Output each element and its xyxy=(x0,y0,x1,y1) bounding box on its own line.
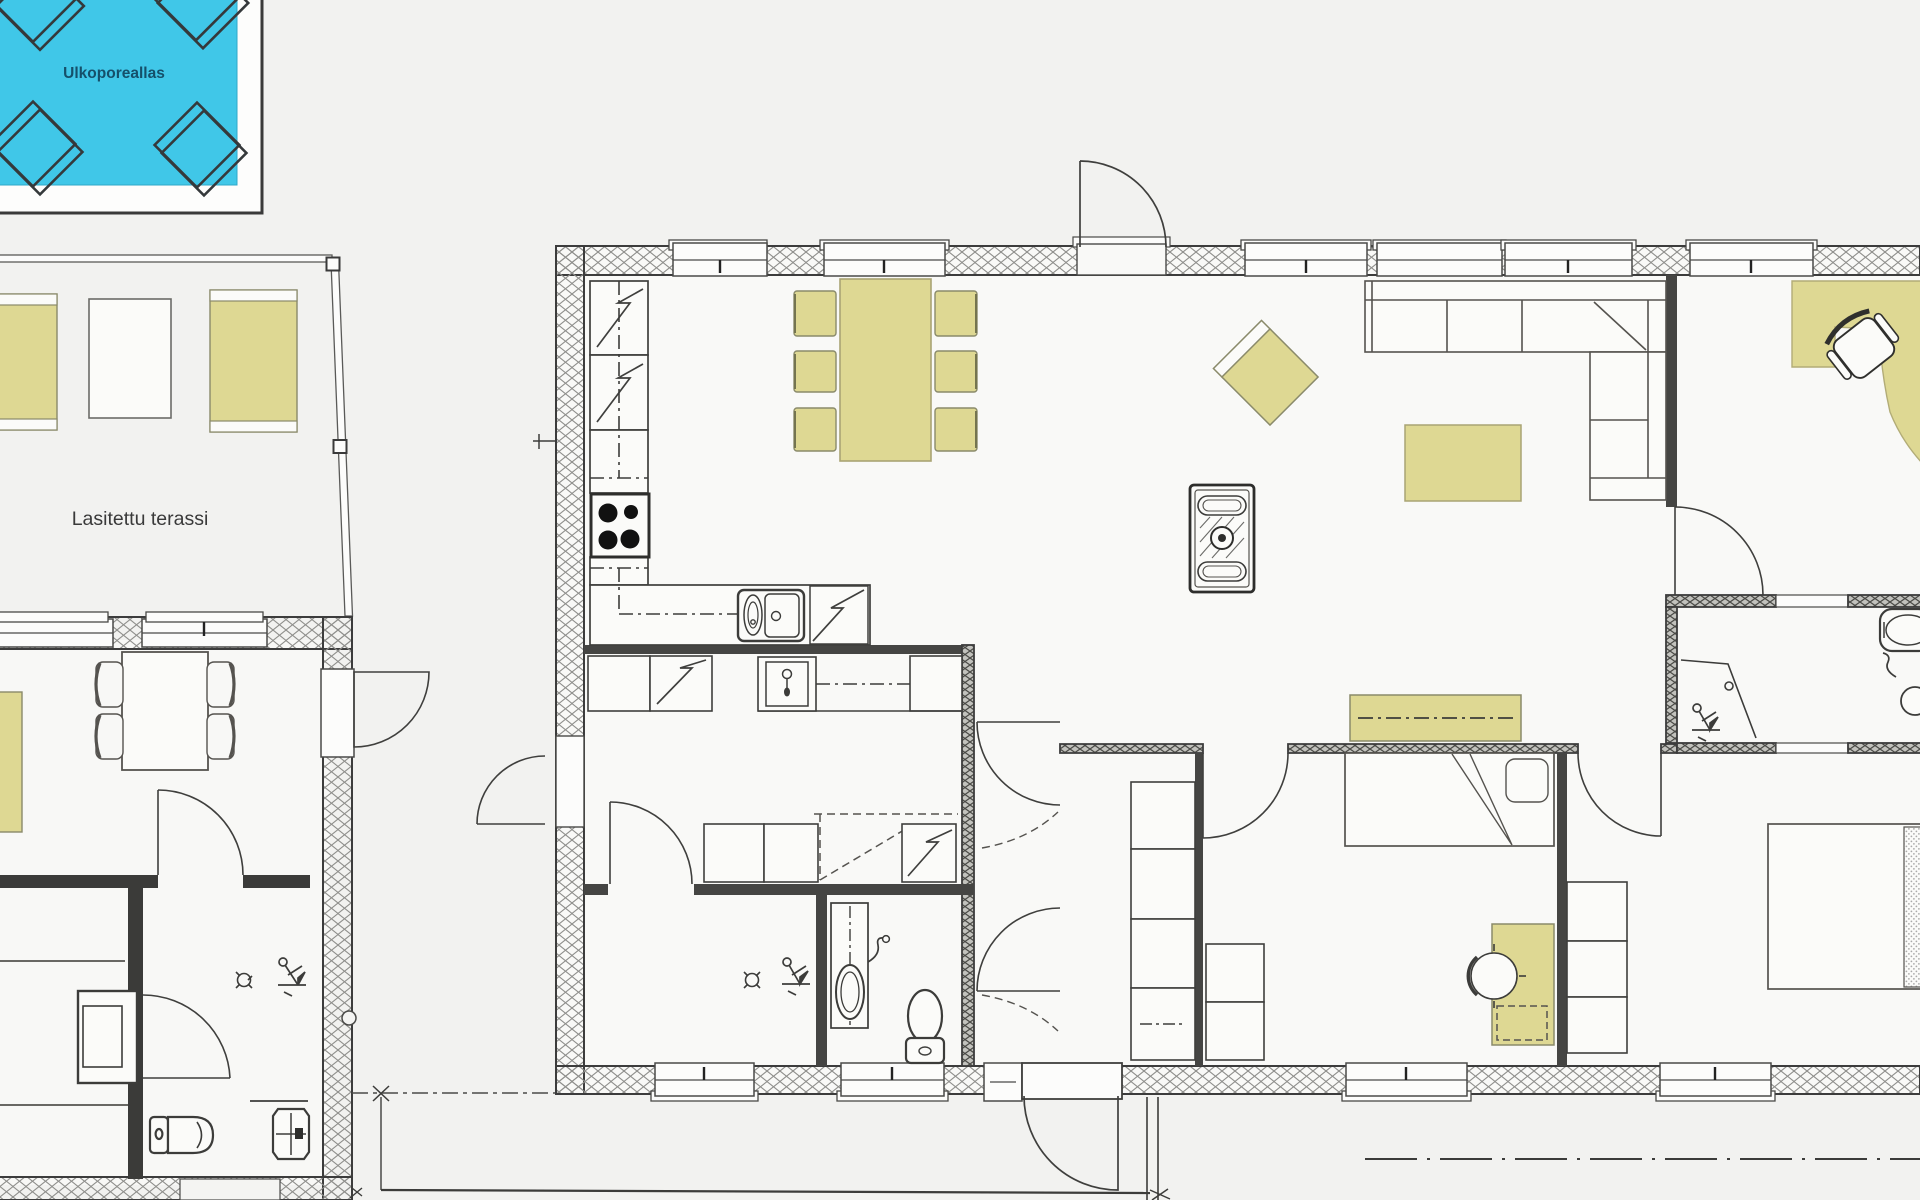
svg-text:Lasitettu terassi: Lasitettu terassi xyxy=(72,508,209,530)
svg-text:Ulkoporeallas: Ulkoporeallas xyxy=(63,65,165,82)
